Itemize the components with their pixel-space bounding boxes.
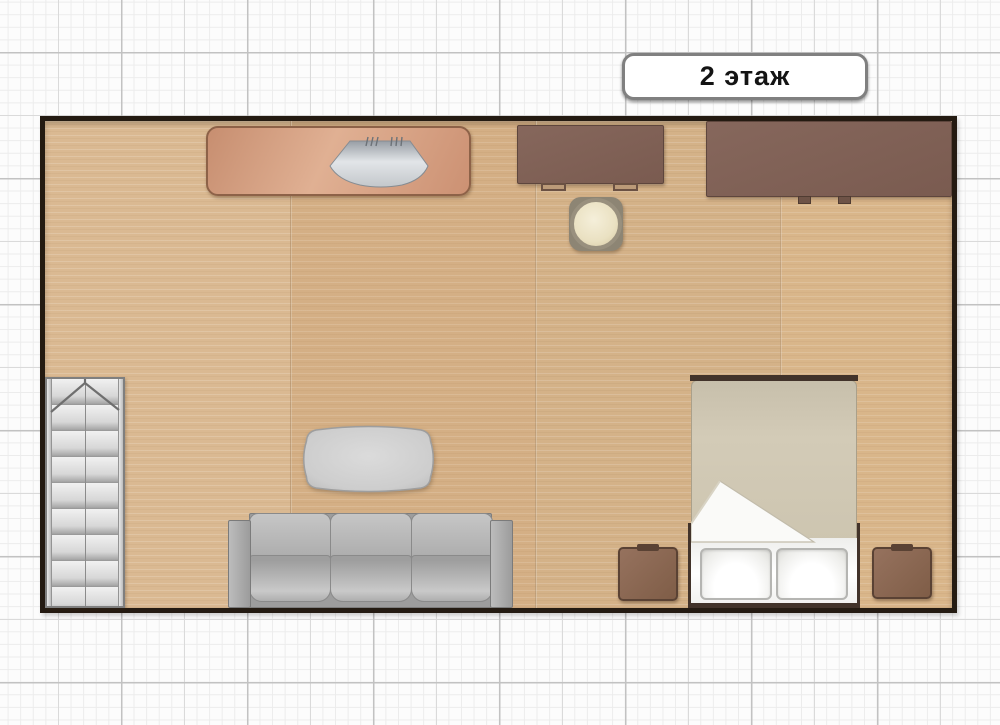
coffee-table[interactable] — [302, 422, 435, 496]
floor-label-text: 2 этаж — [700, 61, 790, 92]
kitchen-counter[interactable] — [206, 126, 471, 196]
sofa-seat-cushion — [330, 555, 412, 602]
desk-small-foot — [541, 183, 566, 191]
stool-seat — [570, 198, 622, 250]
floor-label[interactable]: 2 этаж — [622, 53, 868, 100]
bed-frame — [690, 375, 858, 381]
sofa-armrest-right — [490, 520, 513, 608]
desk-large[interactable] — [706, 121, 952, 197]
pillow — [776, 548, 848, 600]
desk-small[interactable] — [517, 125, 664, 184]
stairs-direction-icon — [47, 379, 123, 419]
bed-frame — [688, 523, 691, 608]
nightstand-left[interactable] — [618, 547, 678, 601]
staircase[interactable] — [45, 377, 125, 608]
floor-plan-canvas: 2 этаж — [0, 0, 1000, 725]
nightstand-right[interactable] — [872, 547, 932, 599]
sink-icon — [326, 136, 432, 188]
stool[interactable] — [569, 197, 623, 251]
floor-seam — [535, 121, 537, 608]
desk-large-foot — [798, 196, 811, 204]
bed[interactable] — [688, 375, 860, 608]
bed-frame — [688, 603, 860, 608]
sofa-armrest-left — [228, 520, 251, 608]
nightstand-handle — [891, 544, 913, 551]
desk-small-foot — [613, 183, 638, 191]
sofa-seat-cushion — [411, 555, 493, 602]
nightstand-handle — [637, 544, 659, 551]
sofa[interactable] — [228, 513, 513, 608]
room-walls[interactable] — [40, 116, 957, 613]
bed-frame — [857, 523, 860, 608]
sofa-seat-cushions — [249, 555, 492, 602]
desk-large-foot — [838, 196, 851, 204]
sofa-seat-cushion — [249, 555, 331, 602]
pillow — [700, 548, 772, 600]
